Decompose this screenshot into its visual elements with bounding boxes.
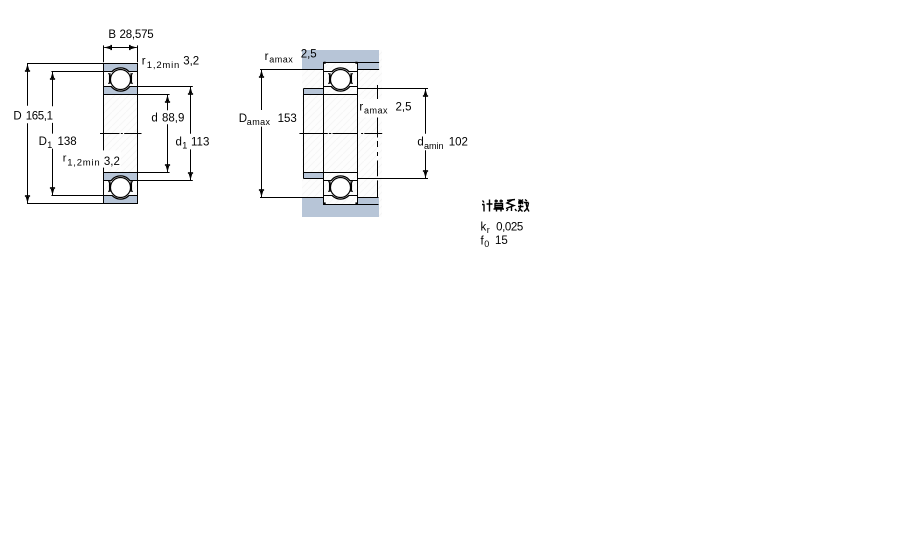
svg-text:1: 1 xyxy=(182,141,187,151)
svg-text:3,2: 3,2 xyxy=(183,56,199,68)
svg-text:1,2min: 1,2min xyxy=(67,158,100,169)
svg-text:102: 102 xyxy=(449,137,468,149)
svg-text:3,2: 3,2 xyxy=(104,156,120,168)
svg-text:88,9: 88,9 xyxy=(162,113,184,125)
svg-text:0: 0 xyxy=(484,239,489,249)
svg-text:B: B xyxy=(108,29,116,41)
svg-text:amax: amax xyxy=(247,117,271,127)
svg-text:d: d xyxy=(151,113,157,125)
svg-text:r: r xyxy=(265,51,269,63)
svg-text:r: r xyxy=(63,152,67,164)
svg-text:2,5: 2,5 xyxy=(301,48,317,60)
svg-text:r: r xyxy=(487,225,490,235)
svg-text:D: D xyxy=(13,111,21,123)
svg-text:138: 138 xyxy=(58,136,77,148)
svg-text:d: d xyxy=(176,137,182,149)
svg-text:165,1: 165,1 xyxy=(26,111,53,123)
svg-text:15: 15 xyxy=(495,235,508,247)
svg-text:2,5: 2,5 xyxy=(396,101,412,113)
svg-text:r: r xyxy=(142,56,146,68)
svg-text:amin: amin xyxy=(424,141,444,151)
svg-text:amax: amax xyxy=(364,106,388,116)
svg-text:28,575: 28,575 xyxy=(120,29,154,41)
svg-text:D: D xyxy=(39,136,47,148)
svg-text:1,2min: 1,2min xyxy=(147,60,180,71)
svg-text:amax: amax xyxy=(269,54,293,64)
svg-text:r: r xyxy=(359,102,363,114)
svg-text:k: k xyxy=(481,221,487,233)
svg-text:d: d xyxy=(417,137,423,149)
svg-text:153: 153 xyxy=(278,113,297,125)
svg-text:1: 1 xyxy=(47,140,52,150)
svg-text:0,025: 0,025 xyxy=(496,222,523,234)
svg-text:113: 113 xyxy=(191,137,209,149)
